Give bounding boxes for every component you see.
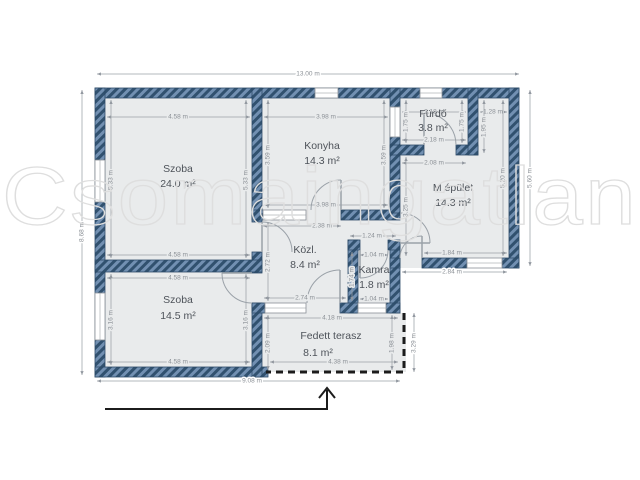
dim-label: 1.75 m [459,112,466,132]
wall-kozl-bottom [386,303,400,313]
room-label: Kamra [359,264,390,276]
dim-label: 1.98 m [389,333,396,353]
dim-label: 1.95 m [481,117,488,137]
dim-label: 9.08 m [242,378,262,385]
wall-konyha-right [390,243,400,313]
wall-mepulet-bottom [422,258,467,268]
dim-label: 4.58 m [168,275,188,282]
dim-label: 13.00 m [296,71,320,78]
wall-mepulet-bottom [390,258,400,268]
room-area: 3.8 m² [418,122,448,134]
dim-label: 2.09 m [265,333,272,353]
dim-label: 4.58 m [168,359,188,366]
room-label: Szoba [163,294,193,306]
dim-label: 3.98 m [316,114,336,121]
dim-label: 1.74 m [349,267,356,287]
wall-kozl-bottom [252,303,265,313]
floorplan-page: 13.00 m 4.58 m 3.98 m 2.18 m 1.28 m 3.98… [0,0,640,480]
dim-label: 1.28 m [483,109,503,116]
dim-label: 4.18 m [322,315,342,322]
room-area: 8.4 m² [290,259,320,271]
arrow-line [105,390,327,409]
wall-kozl-bottom [340,303,358,313]
dim-label: 2.74 m [295,295,315,302]
dim-label: 1.04 m [364,296,384,303]
window-konyha-top [315,88,338,98]
window-mepulet-bottom [467,258,502,268]
watermark-text: Csomaingatlan [2,151,638,242]
room-label: Fürdő [419,108,447,120]
dim-label: 4.58 m [168,252,188,259]
window-furdo-top [420,88,442,98]
dim-label: 3.16 m [243,310,250,330]
dim-label: 2.84 m [442,269,462,276]
wall-furdo-right [468,88,478,155]
dim-label: 3.29 m [411,333,418,353]
wall-bottom-left [95,367,268,377]
floorplan-canvas: 13.00 m 4.58 m 3.98 m 2.18 m 1.28 m 3.98… [0,0,640,480]
orientation-arrow-icon [105,388,335,409]
dim-label: 1.04 m [364,252,384,259]
wall-mid-vertical [252,303,262,377]
dim-label: 4.58 m [168,114,188,121]
room-area: 8.1 m² [303,347,333,359]
dim-label: 3.16 m [108,310,115,330]
dim-label: 1.75 m [403,112,410,132]
wall-top [95,88,519,98]
dim-label: 2.72 m [265,252,272,272]
room-area: 1.8 m² [359,279,389,291]
room-label: Fedett terasz [300,330,361,342]
dim-label: 2.18 m [424,137,444,144]
wall-mepulet-bottom [502,258,519,268]
wall-between-szoba [95,260,262,272]
room-area: 14.5 m² [160,310,196,322]
dim-label: 1.84 m [442,250,462,257]
room-label: Közl. [293,244,316,256]
window-szoba2-left [95,293,105,340]
dim-label: 4.38 m [328,359,348,366]
